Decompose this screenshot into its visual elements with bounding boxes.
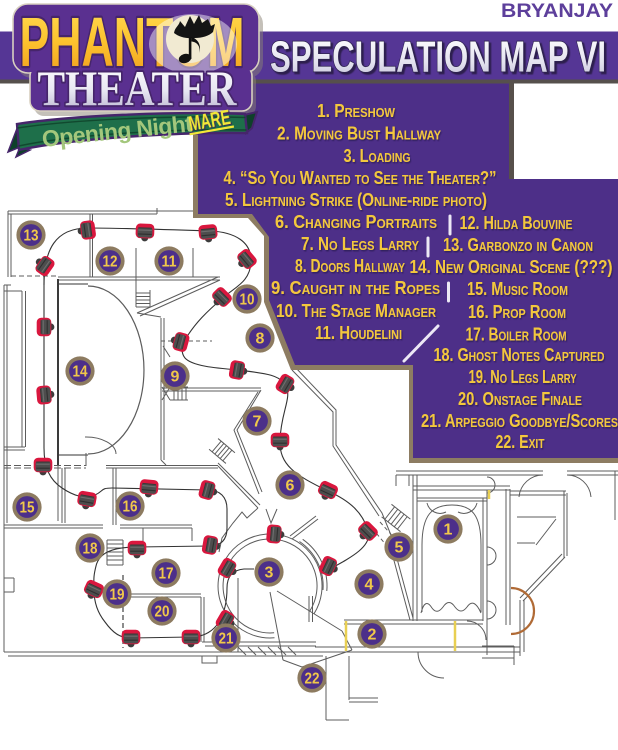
svg-text:13: 13 [24,228,39,245]
svg-text:18: 18 [83,541,98,558]
svg-text:BRYANJAY: BRYANJAY [501,0,613,22]
svg-text:17. Boiler Room: 17. Boiler Room [466,325,567,345]
svg-text:16: 16 [123,499,138,516]
svg-text:22: 22 [305,671,320,688]
svg-text:3. Loading: 3. Loading [344,146,411,166]
svg-text:16. Prop Room: 16. Prop Room [468,302,566,322]
svg-text:2. Moving Bust Hallway: 2. Moving Bust Hallway [277,124,441,144]
svg-text:20. Onstage Finale: 20. Onstage Finale [458,389,582,409]
svg-text:5. Lightning Strike (Online-ri: 5. Lightning Strike (Online-ride photo) [225,190,487,210]
svg-text:9: 9 [171,369,180,386]
svg-text:10: 10 [240,292,255,309]
svg-text:1: 1 [444,522,453,539]
svg-text:17: 17 [159,566,174,583]
svg-text:5: 5 [395,540,404,557]
svg-text:THEATER: THEATER [38,60,238,116]
svg-text:8: 8 [256,331,265,348]
svg-text:9. Caught in the Ropes: 9. Caught in the Ropes [271,278,440,298]
svg-text:15: 15 [20,500,35,517]
svg-text:20: 20 [155,604,170,621]
svg-text:19: 19 [110,587,125,604]
svg-text:7: 7 [253,414,262,431]
svg-text:11: 11 [162,254,177,271]
svg-text:3: 3 [265,565,274,582]
svg-text:19. No Legs Larry: 19. No Legs Larry [469,367,577,387]
svg-text:8. Doors Hallway: 8. Doors Hallway [295,256,405,276]
svg-text:6. Changing Portraits: 6. Changing Portraits [275,212,437,232]
svg-text:2: 2 [368,627,377,644]
svg-text:4: 4 [365,577,374,594]
svg-text:21: 21 [219,631,234,648]
svg-text:1. Preshow: 1. Preshow [317,101,396,121]
svg-text:4. “So You Wanted to See the T: 4. “So You Wanted to See the Theater?” [224,168,497,188]
svg-text:7. No Legs Larry: 7. No Legs Larry [301,234,419,254]
svg-text:10. The Stage Manager: 10. The Stage Manager [276,301,437,321]
svg-text:14: 14 [73,364,88,381]
svg-text:14. New Original Scene (???): 14. New Original Scene (???) [410,257,613,277]
svg-text:21. Arpeggio Goodbye/Scores: 21. Arpeggio Goodbye/Scores [421,411,618,431]
svg-text:13. Garbonzo in Canon: 13. Garbonzo in Canon [443,235,593,255]
svg-text:SPECULATION MAP VI: SPECULATION MAP VI [270,33,606,82]
svg-text:22. Exit: 22. Exit [496,432,545,452]
svg-text:12. Hilda Bouvine: 12. Hilda Bouvine [460,213,573,233]
svg-text:12: 12 [103,254,118,271]
svg-text:6: 6 [286,478,295,495]
svg-text:11. Houdelini: 11. Houdelini [315,323,402,343]
svg-text:18. Ghost Notes Captured: 18. Ghost Notes Captured [434,345,605,365]
svg-text:15. Music Room: 15. Music Room [467,279,568,299]
